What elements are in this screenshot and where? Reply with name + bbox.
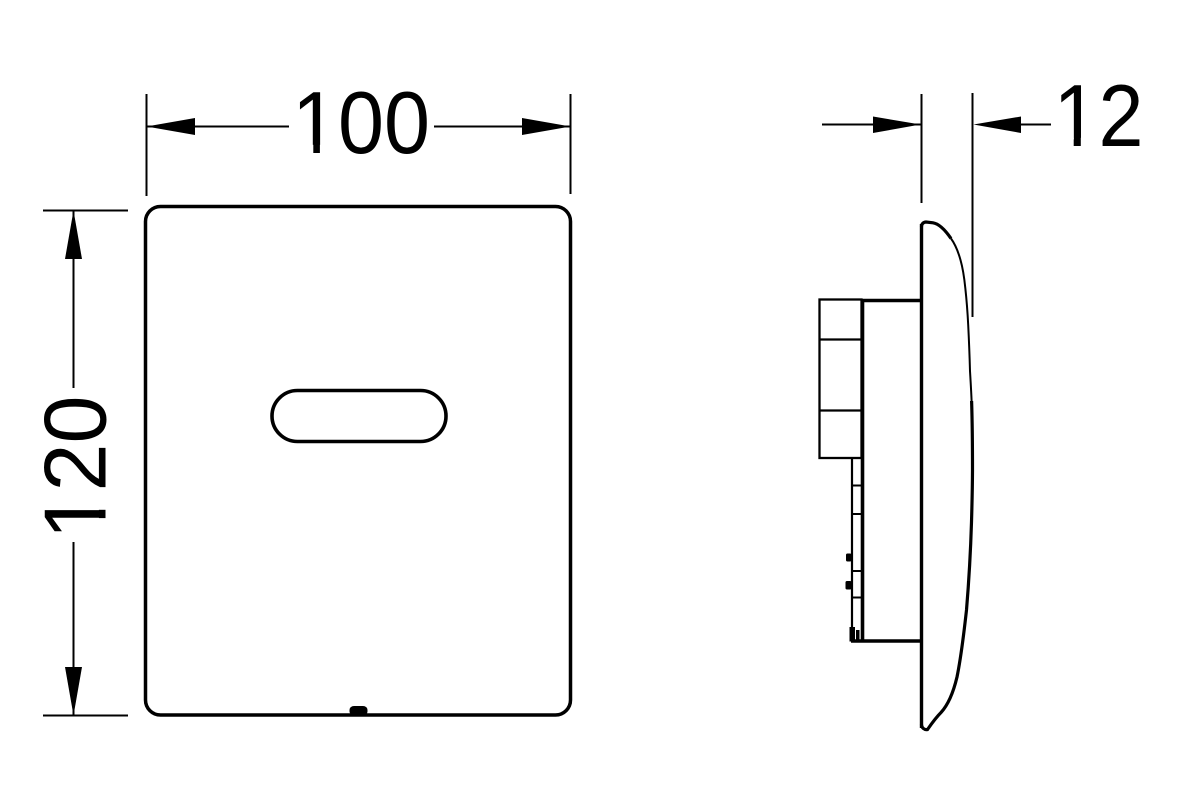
svg-text:120: 120 (26, 396, 125, 540)
svg-text:12: 12 (1054, 66, 1144, 165)
svg-text:100: 100 (292, 73, 430, 172)
